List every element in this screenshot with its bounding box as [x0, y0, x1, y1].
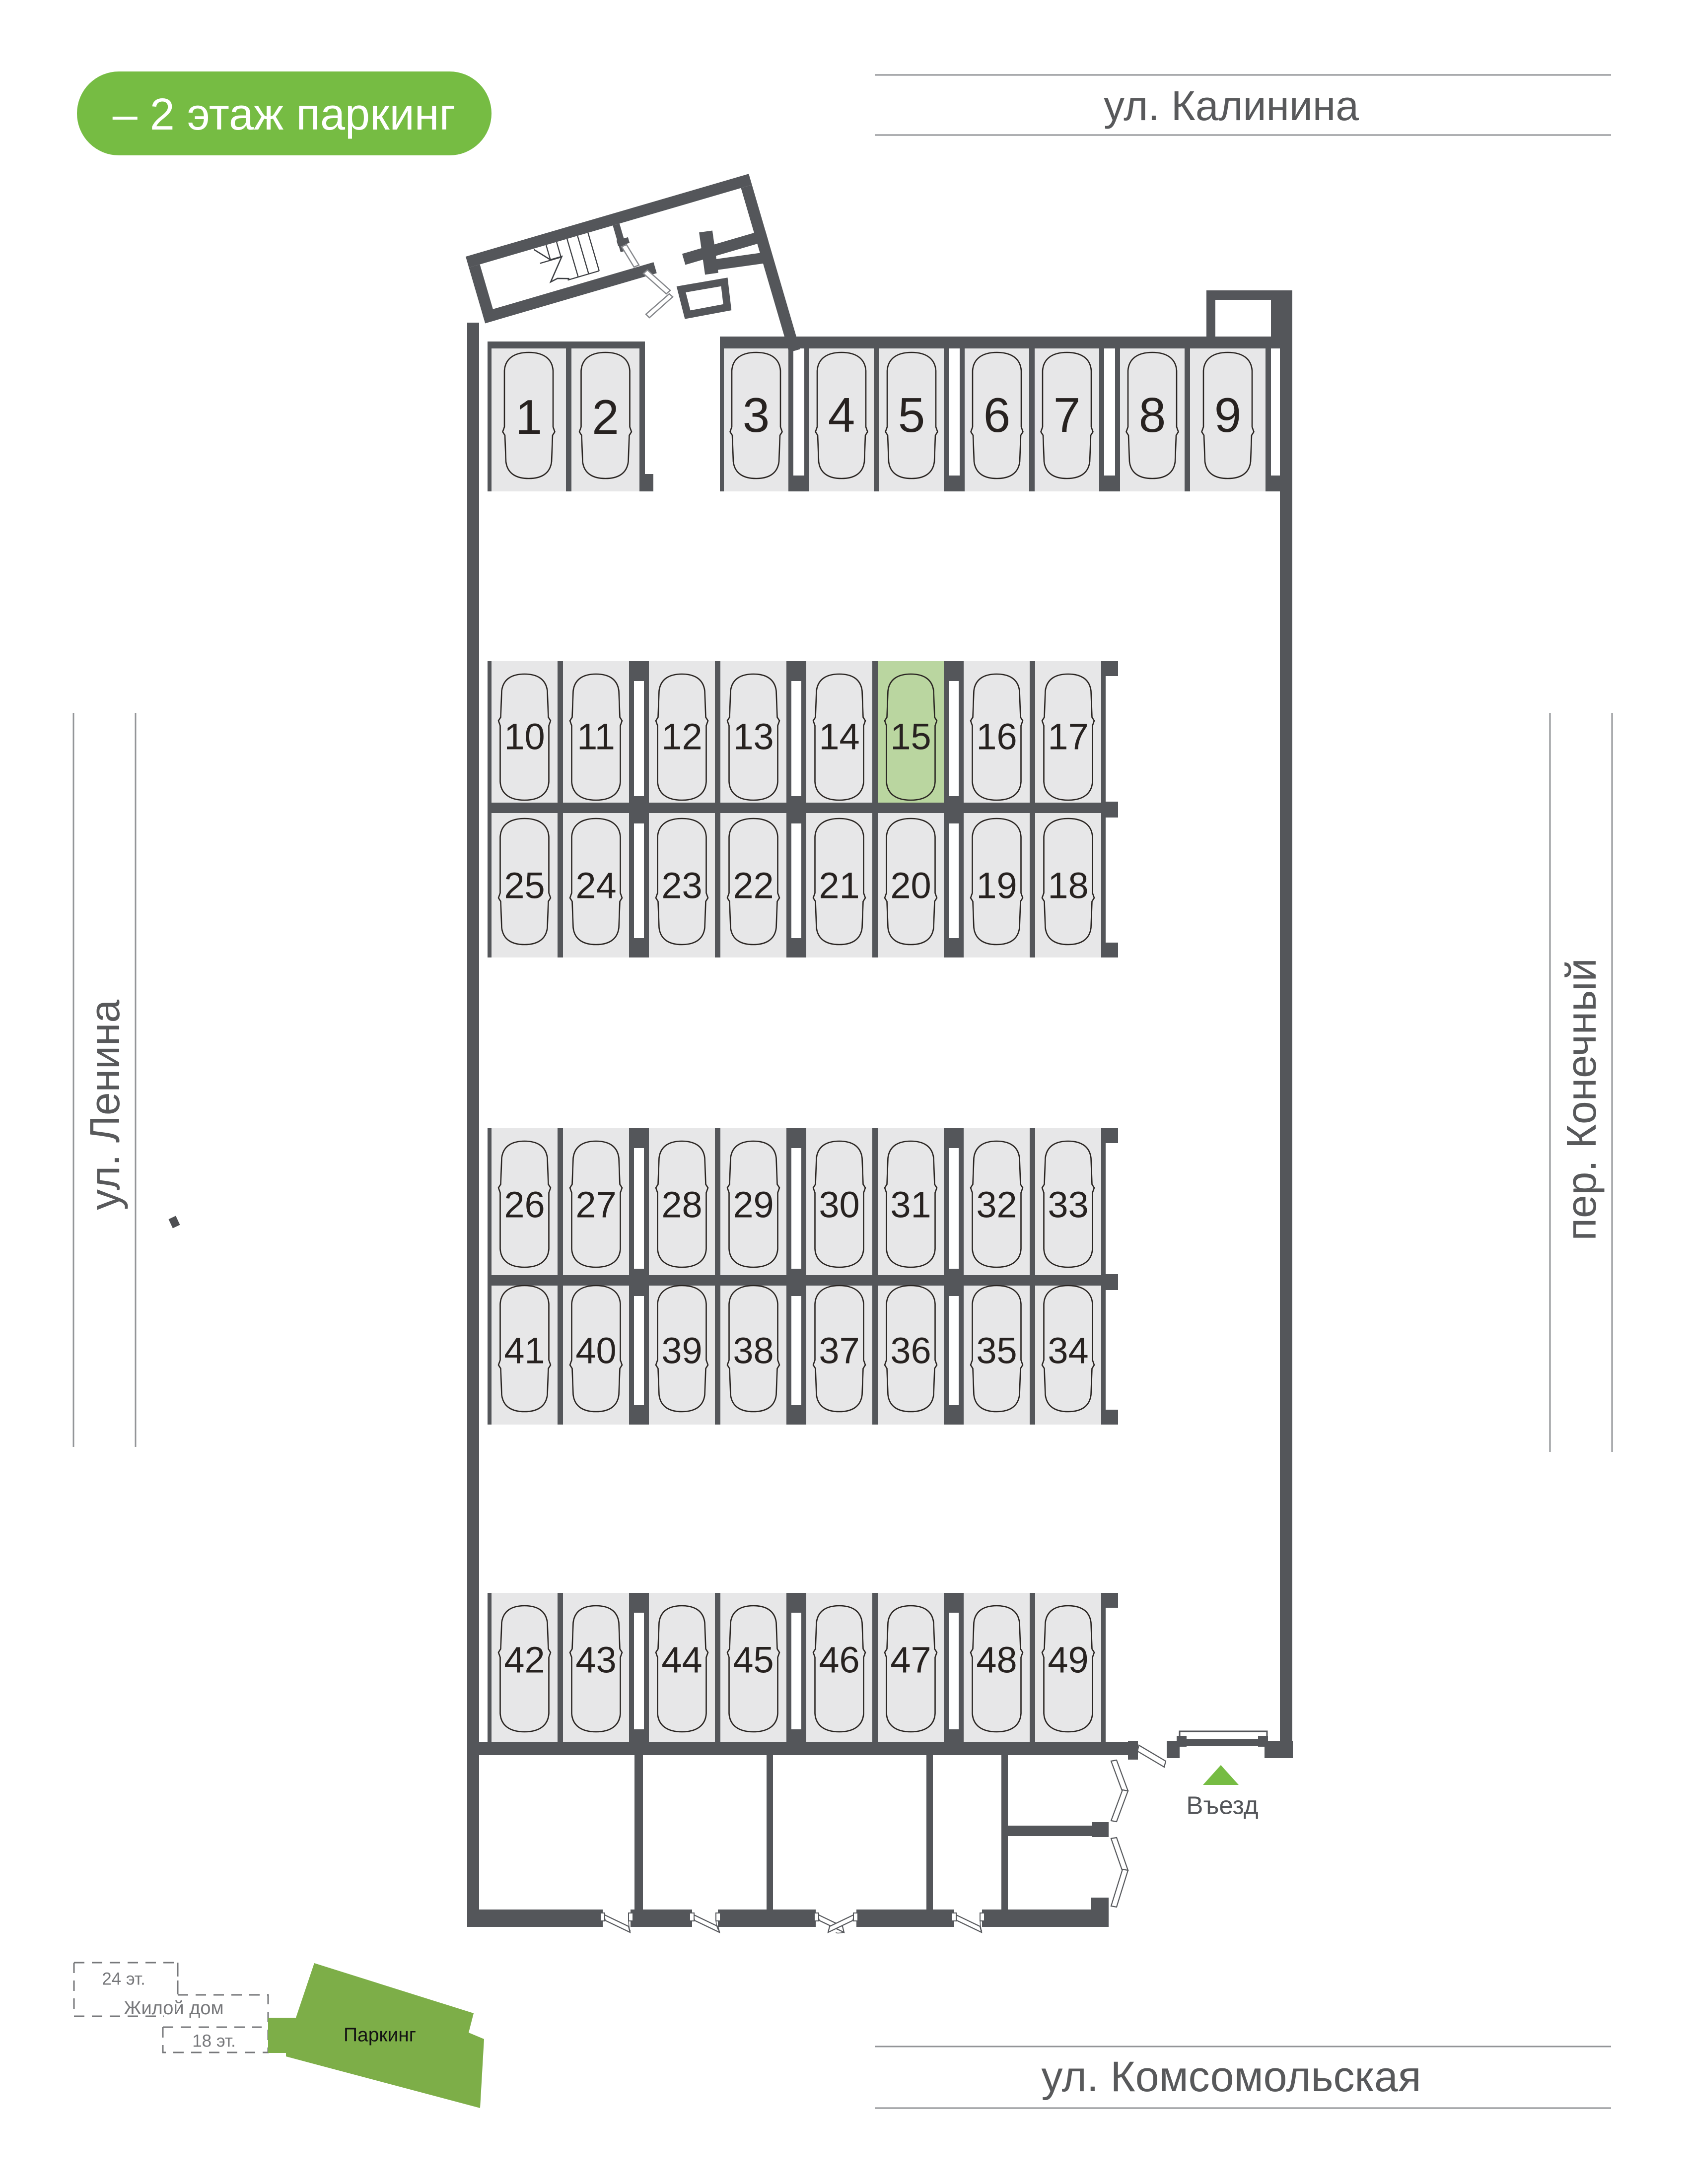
svg-text:7: 7: [1054, 388, 1081, 442]
svg-text:26: 26: [504, 1184, 545, 1226]
svg-text:2: 2: [592, 390, 619, 444]
svg-text:8: 8: [1139, 388, 1166, 442]
svg-text:21: 21: [819, 865, 859, 906]
svg-text:31: 31: [890, 1184, 931, 1226]
svg-text:3: 3: [743, 388, 770, 442]
svg-text:24 эт.: 24 эт.: [102, 1970, 145, 1989]
svg-text:42: 42: [504, 1639, 545, 1681]
svg-text:23: 23: [661, 865, 702, 906]
svg-text:41: 41: [504, 1330, 545, 1371]
svg-text:47: 47: [890, 1639, 931, 1681]
svg-text:5: 5: [898, 388, 925, 442]
svg-text:19: 19: [976, 865, 1017, 906]
svg-text:32: 32: [976, 1184, 1017, 1226]
svg-text:29: 29: [733, 1184, 774, 1226]
svg-text:36: 36: [890, 1330, 931, 1371]
svg-text:Въезд: Въезд: [1186, 1791, 1258, 1820]
svg-text:18: 18: [1048, 865, 1088, 906]
svg-text:15: 15: [890, 716, 931, 757]
svg-text:49: 49: [1048, 1639, 1088, 1681]
svg-text:13: 13: [733, 716, 774, 757]
svg-text:16: 16: [976, 716, 1017, 757]
svg-text:4: 4: [828, 388, 855, 442]
svg-text:20: 20: [890, 865, 931, 906]
svg-text:24: 24: [575, 865, 616, 906]
svg-text:10: 10: [504, 716, 545, 757]
svg-text:43: 43: [575, 1639, 616, 1681]
svg-text:25: 25: [504, 865, 545, 906]
svg-text:37: 37: [819, 1330, 859, 1371]
svg-text:38: 38: [733, 1330, 774, 1371]
svg-text:11: 11: [577, 716, 615, 757]
svg-text:40: 40: [575, 1330, 616, 1371]
svg-text:34: 34: [1048, 1330, 1088, 1371]
svg-text:44: 44: [661, 1639, 702, 1681]
svg-text:22: 22: [733, 865, 774, 906]
svg-text:ул. Ленина: ул. Ленина: [81, 1000, 128, 1210]
svg-text:45: 45: [733, 1639, 774, 1681]
svg-text:ул. Калинина: ул. Калинина: [1104, 82, 1359, 129]
svg-text:ул. Комсомольская: ул. Комсомольская: [1042, 2053, 1421, 2101]
svg-text:Паркинг: Паркинг: [344, 2025, 416, 2046]
svg-text:Жилой дом: Жилой дом: [124, 1998, 223, 2019]
svg-text:пер. Конечный: пер. Конечный: [1558, 958, 1605, 1240]
svg-text:33: 33: [1048, 1184, 1088, 1226]
svg-text:28: 28: [661, 1184, 702, 1226]
svg-text:17: 17: [1048, 716, 1088, 757]
svg-text:46: 46: [819, 1639, 859, 1681]
svg-text:6: 6: [984, 388, 1011, 442]
svg-text:30: 30: [819, 1184, 859, 1226]
svg-text:9: 9: [1214, 388, 1242, 442]
svg-text:27: 27: [575, 1184, 616, 1226]
svg-text:12: 12: [661, 716, 702, 757]
svg-text:39: 39: [661, 1330, 702, 1371]
svg-text:1: 1: [515, 390, 543, 444]
svg-text:48: 48: [976, 1639, 1017, 1681]
svg-text:35: 35: [976, 1330, 1017, 1371]
svg-text:– 2 этаж паркинг: – 2 этаж паркинг: [113, 90, 456, 139]
svg-text:18 эт.: 18 эт.: [192, 2032, 236, 2051]
svg-text:14: 14: [819, 716, 859, 757]
